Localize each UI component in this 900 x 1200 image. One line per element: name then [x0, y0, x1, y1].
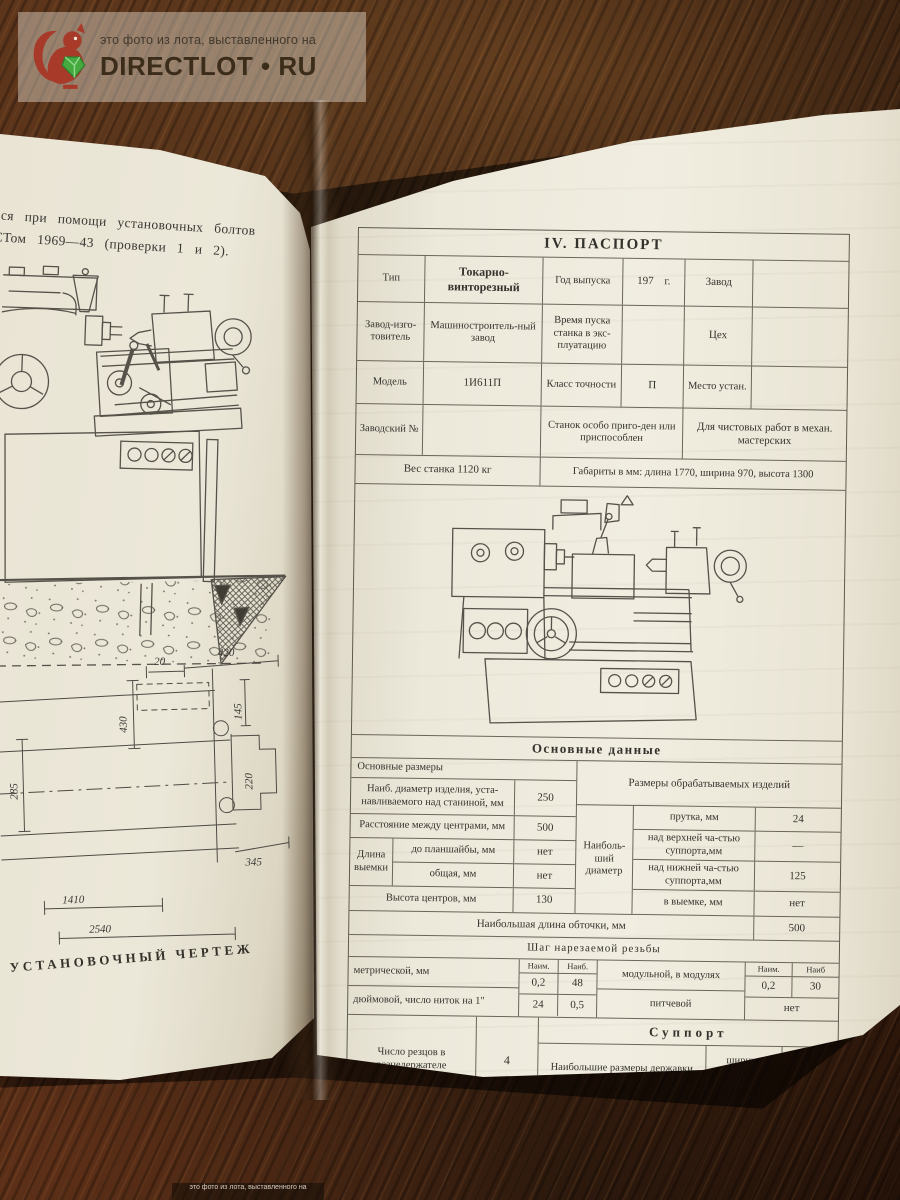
- field-year-value: 197 г.: [622, 259, 685, 306]
- distance-between-centers-value: 500: [513, 816, 575, 840]
- metric-max-value: 48: [557, 974, 596, 995]
- field-overall-dimensions: Габариты в мм: длина 1770, ширина 970, в…: [539, 458, 845, 490]
- dim-label-145: 145: [232, 703, 244, 720]
- passport-header-table: Тип Токарно-винторезный Год выпуска 197 …: [355, 254, 848, 491]
- field-model-label: Модель: [357, 361, 424, 404]
- field-factory-value: [752, 261, 849, 308]
- field-shop-label: Цех: [683, 307, 752, 366]
- watermark-caption: это фото из лота, выставленного на: [100, 33, 317, 47]
- dim-label-345: 345: [244, 856, 262, 868]
- cutters-count-label: Число резцов в резцедержателе: [347, 1015, 476, 1104]
- installation-drawing-caption: УСТАНОВОЧНЫЙ ЧЕРТЕЖ: [9, 941, 253, 975]
- field-class-value: П: [621, 365, 684, 408]
- workpiece-sizes-header: Размеры обрабатываемых изделий: [577, 761, 842, 809]
- dim-label-285: 285: [8, 783, 20, 800]
- watermark-brand: DIRECTLOT • RU: [100, 51, 317, 82]
- dim-label-420: 420: [218, 647, 235, 659]
- pitch-thread-label: питчевой: [597, 989, 744, 1019]
- right-page: IV. ПАСПОРТ Тип Токарно-винторезный Год …: [303, 105, 900, 1165]
- dim-label-220: 220: [243, 772, 255, 789]
- turning-length-value: 500: [753, 917, 839, 941]
- max-diameter-over-bed-value: 250: [514, 780, 576, 816]
- photo-scene: ся при помощи установочных болтов СТом 1…: [0, 0, 900, 1200]
- notch-to-faceplate-label: до планшайбы, мм: [393, 839, 513, 865]
- distance-between-centers-label: Расстояние между центрами, мм: [350, 814, 513, 839]
- notch-total-label: общая, мм: [393, 863, 513, 888]
- main-sizes-table: Основные размеры Наиб. диаметр изделия, …: [349, 758, 841, 917]
- center-height-label: Высота центров, мм: [349, 886, 512, 912]
- max-diameter-over-bed-label: Наиб. диаметр изделия, уста-навливаемого…: [351, 778, 514, 815]
- dim-label-2540: 2540: [89, 923, 112, 936]
- field-place-value: [751, 367, 848, 410]
- field-class-label: Класс точности: [541, 364, 622, 407]
- field-place-label: Место устан.: [683, 366, 752, 409]
- over-upper-support-label: над верхней ча-стью суппорта,мм: [633, 830, 754, 862]
- field-weight: Вес станка 1120 кг: [355, 455, 539, 486]
- notch-to-faceplate-value: нет: [514, 840, 575, 865]
- watermark-bottom-strip: это фото из лота, выставленного на: [172, 1183, 324, 1200]
- module-max-value: 30: [791, 977, 838, 998]
- lathe-drawing-area: [352, 484, 845, 741]
- metric-min-value: 0,2: [519, 973, 557, 994]
- watermark-banner: это фото из лота, выставленного на DIREC…: [18, 12, 366, 102]
- notch-total-value: нет: [514, 864, 575, 888]
- watermark-bottom-caption: это фото из лота, выставленного на: [189, 1183, 306, 1193]
- field-type-label: Тип: [358, 255, 425, 302]
- min-header-right: Наим.: [746, 962, 792, 976]
- field-manufacturer-label: Завод-изго-товитель: [357, 302, 424, 361]
- metric-thread-label: метрической, мм: [348, 957, 518, 988]
- field-shop-value: [751, 308, 848, 367]
- thread-table: метрической, мм дюймовой, число ниток на…: [348, 956, 839, 1021]
- pitch-thread-value: нет: [745, 997, 838, 1019]
- field-type-value: Токарно-винторезный: [424, 256, 543, 304]
- squirrel-logo-icon: [28, 23, 90, 91]
- installation-drawing: 20 420 430 145 285 220 345 1410 2540 УСТ…: [0, 636, 314, 984]
- dim-label-430: 430: [118, 716, 130, 733]
- passport-document: IV. ПАСПОРТ Тип Токарно-винторезный Год …: [346, 227, 850, 1110]
- in-notch-value: нет: [754, 892, 839, 917]
- inch-min-value: 24: [519, 994, 557, 1016]
- field-serial-value: [422, 405, 541, 457]
- inch-max-value: 0,5: [557, 995, 596, 1017]
- max-header-left: Наиб.: [558, 960, 597, 974]
- over-lower-support-value: 125: [755, 862, 840, 893]
- field-startdate-label: Время пуска станка в экс-плуатацию: [541, 305, 622, 364]
- field-suitability-label: Станок особо приго-ден или приспособлен: [540, 407, 683, 459]
- over-lower-support-label: над нижней ча-стью суппорта,мм: [633, 860, 754, 892]
- bar-diameter-label: прутка, мм: [634, 806, 755, 832]
- bar-diameter-value: 24: [756, 808, 841, 833]
- center-height-value: 130: [512, 888, 574, 913]
- dim-label-1410: 1410: [62, 894, 85, 907]
- field-model-value: 1И611П: [423, 362, 542, 406]
- inch-thread-label: дюймовой, число ниток на 1": [348, 986, 518, 1016]
- left-page: ся при помощи установочных болтов СТом 1…: [0, 128, 318, 1088]
- min-header-left: Наим.: [520, 959, 558, 973]
- dim-label-20: 20: [154, 656, 166, 668]
- field-startdate-value: [621, 306, 684, 365]
- module-min-value: 0,2: [745, 976, 791, 997]
- max-header-right: Наиб: [792, 963, 839, 977]
- module-thread-label: модульной, в модулях: [597, 960, 744, 991]
- max-diameter-group-label: Наиболь-ший диаметр: [575, 805, 633, 914]
- field-suitability-value: Для чистовых работ в механ. мастерских: [682, 409, 847, 461]
- field-manufacturer-value: Машиностроитель-ный завод: [423, 303, 542, 363]
- in-notch-label: в выемке, мм: [632, 890, 753, 916]
- field-factory-label: Завод: [684, 260, 753, 307]
- field-serial-label: Заводский №: [356, 404, 423, 455]
- left-page-paragraph: ся при помощи установочных болтов СТом 1…: [0, 205, 313, 268]
- lathe-drawing-right: [432, 490, 765, 735]
- over-upper-support-value: —: [755, 832, 840, 863]
- notch-length-group-label: Длина выемки: [350, 838, 393, 886]
- basic-sizes-block: Основные размеры Наиб. диаметр изделия, …: [349, 758, 576, 913]
- workpiece-sizes-block: Размеры обрабатываемых изделий Наиболь-ш…: [574, 761, 841, 917]
- field-year-label: Год выпуска: [542, 258, 623, 305]
